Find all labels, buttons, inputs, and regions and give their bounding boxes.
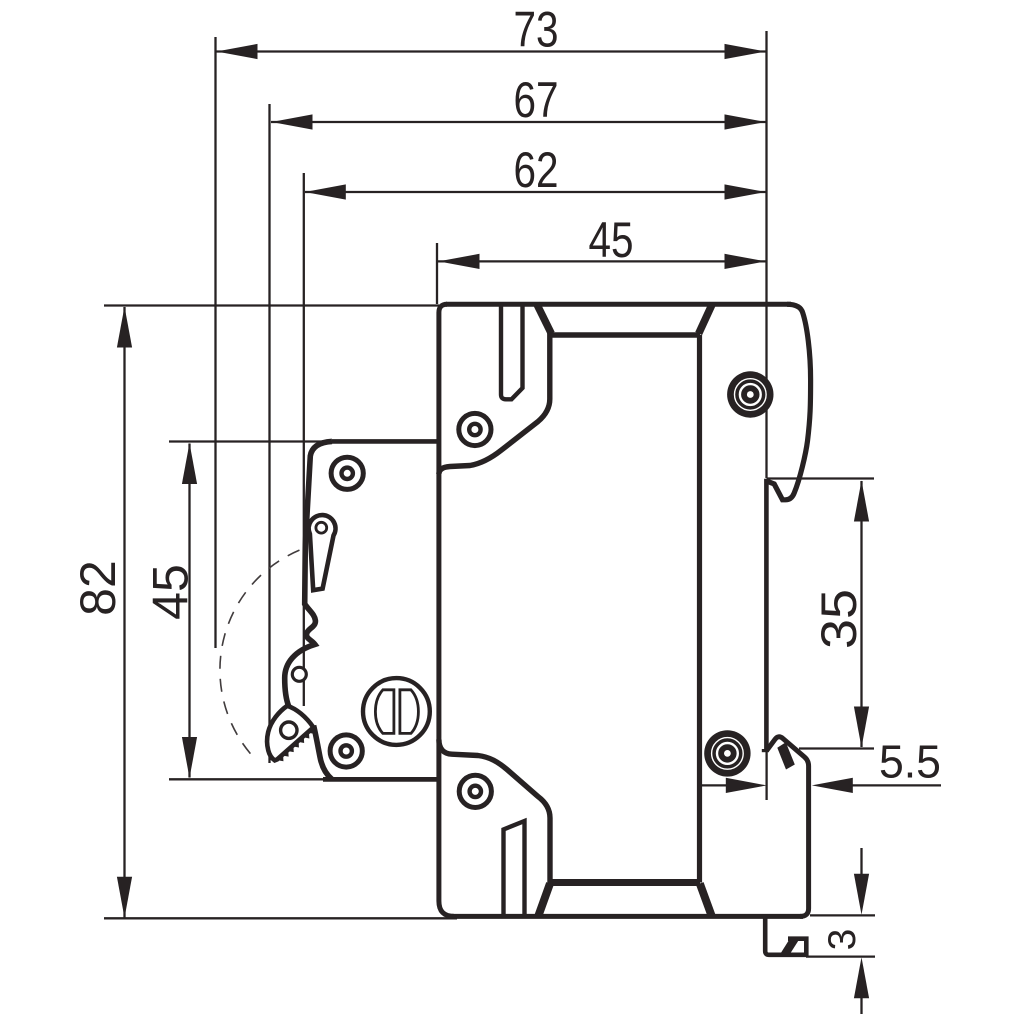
svg-text:62: 62 <box>514 142 559 198</box>
svg-text:3: 3 <box>821 929 864 951</box>
svg-text:35: 35 <box>811 589 867 649</box>
svg-text:67: 67 <box>514 72 559 128</box>
svg-text:73: 73 <box>514 2 559 58</box>
svg-text:5.5: 5.5 <box>879 736 941 788</box>
svg-text:45: 45 <box>143 564 199 620</box>
svg-text:45: 45 <box>589 212 634 268</box>
svg-text:82: 82 <box>70 560 126 616</box>
